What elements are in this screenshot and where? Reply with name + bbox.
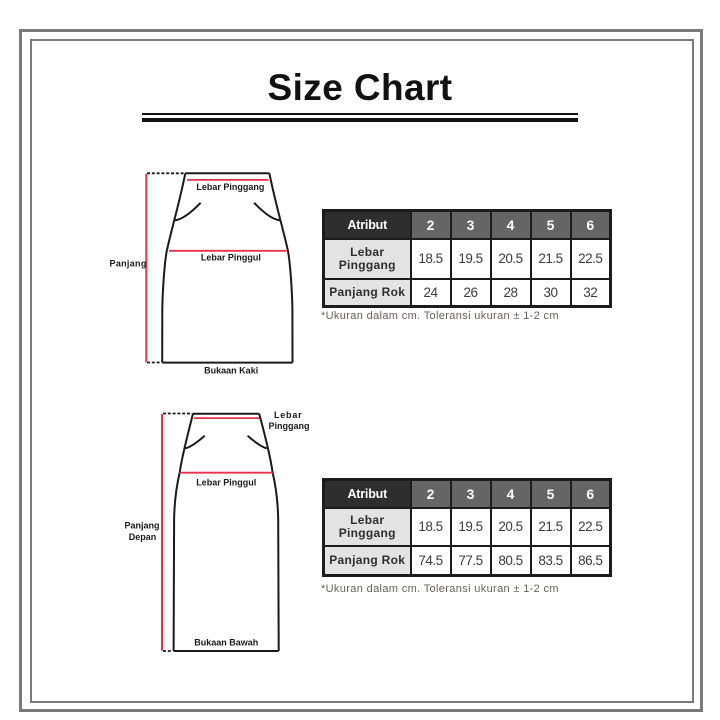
svg-text:Bukaan Kaki: Bukaan Kaki [204,366,258,376]
svg-text:Pinggang: Pinggang [269,421,310,431]
svg-text:Lebar Pinggul: Lebar Pinggul [201,252,261,262]
svg-text:Lebar Pinggang: Lebar Pinggang [196,182,264,192]
svg-text:Depan: Depan [129,532,157,542]
svg-text:Panjang: Panjang [110,258,147,268]
svg-text:Lebar Pinggul: Lebar Pinggul [196,477,256,487]
svg-text:Bukaan Bawah: Bukaan Bawah [194,637,258,647]
svg-text:Lebar: Lebar [274,410,303,420]
svg-text:Panjang: Panjang [124,521,159,531]
